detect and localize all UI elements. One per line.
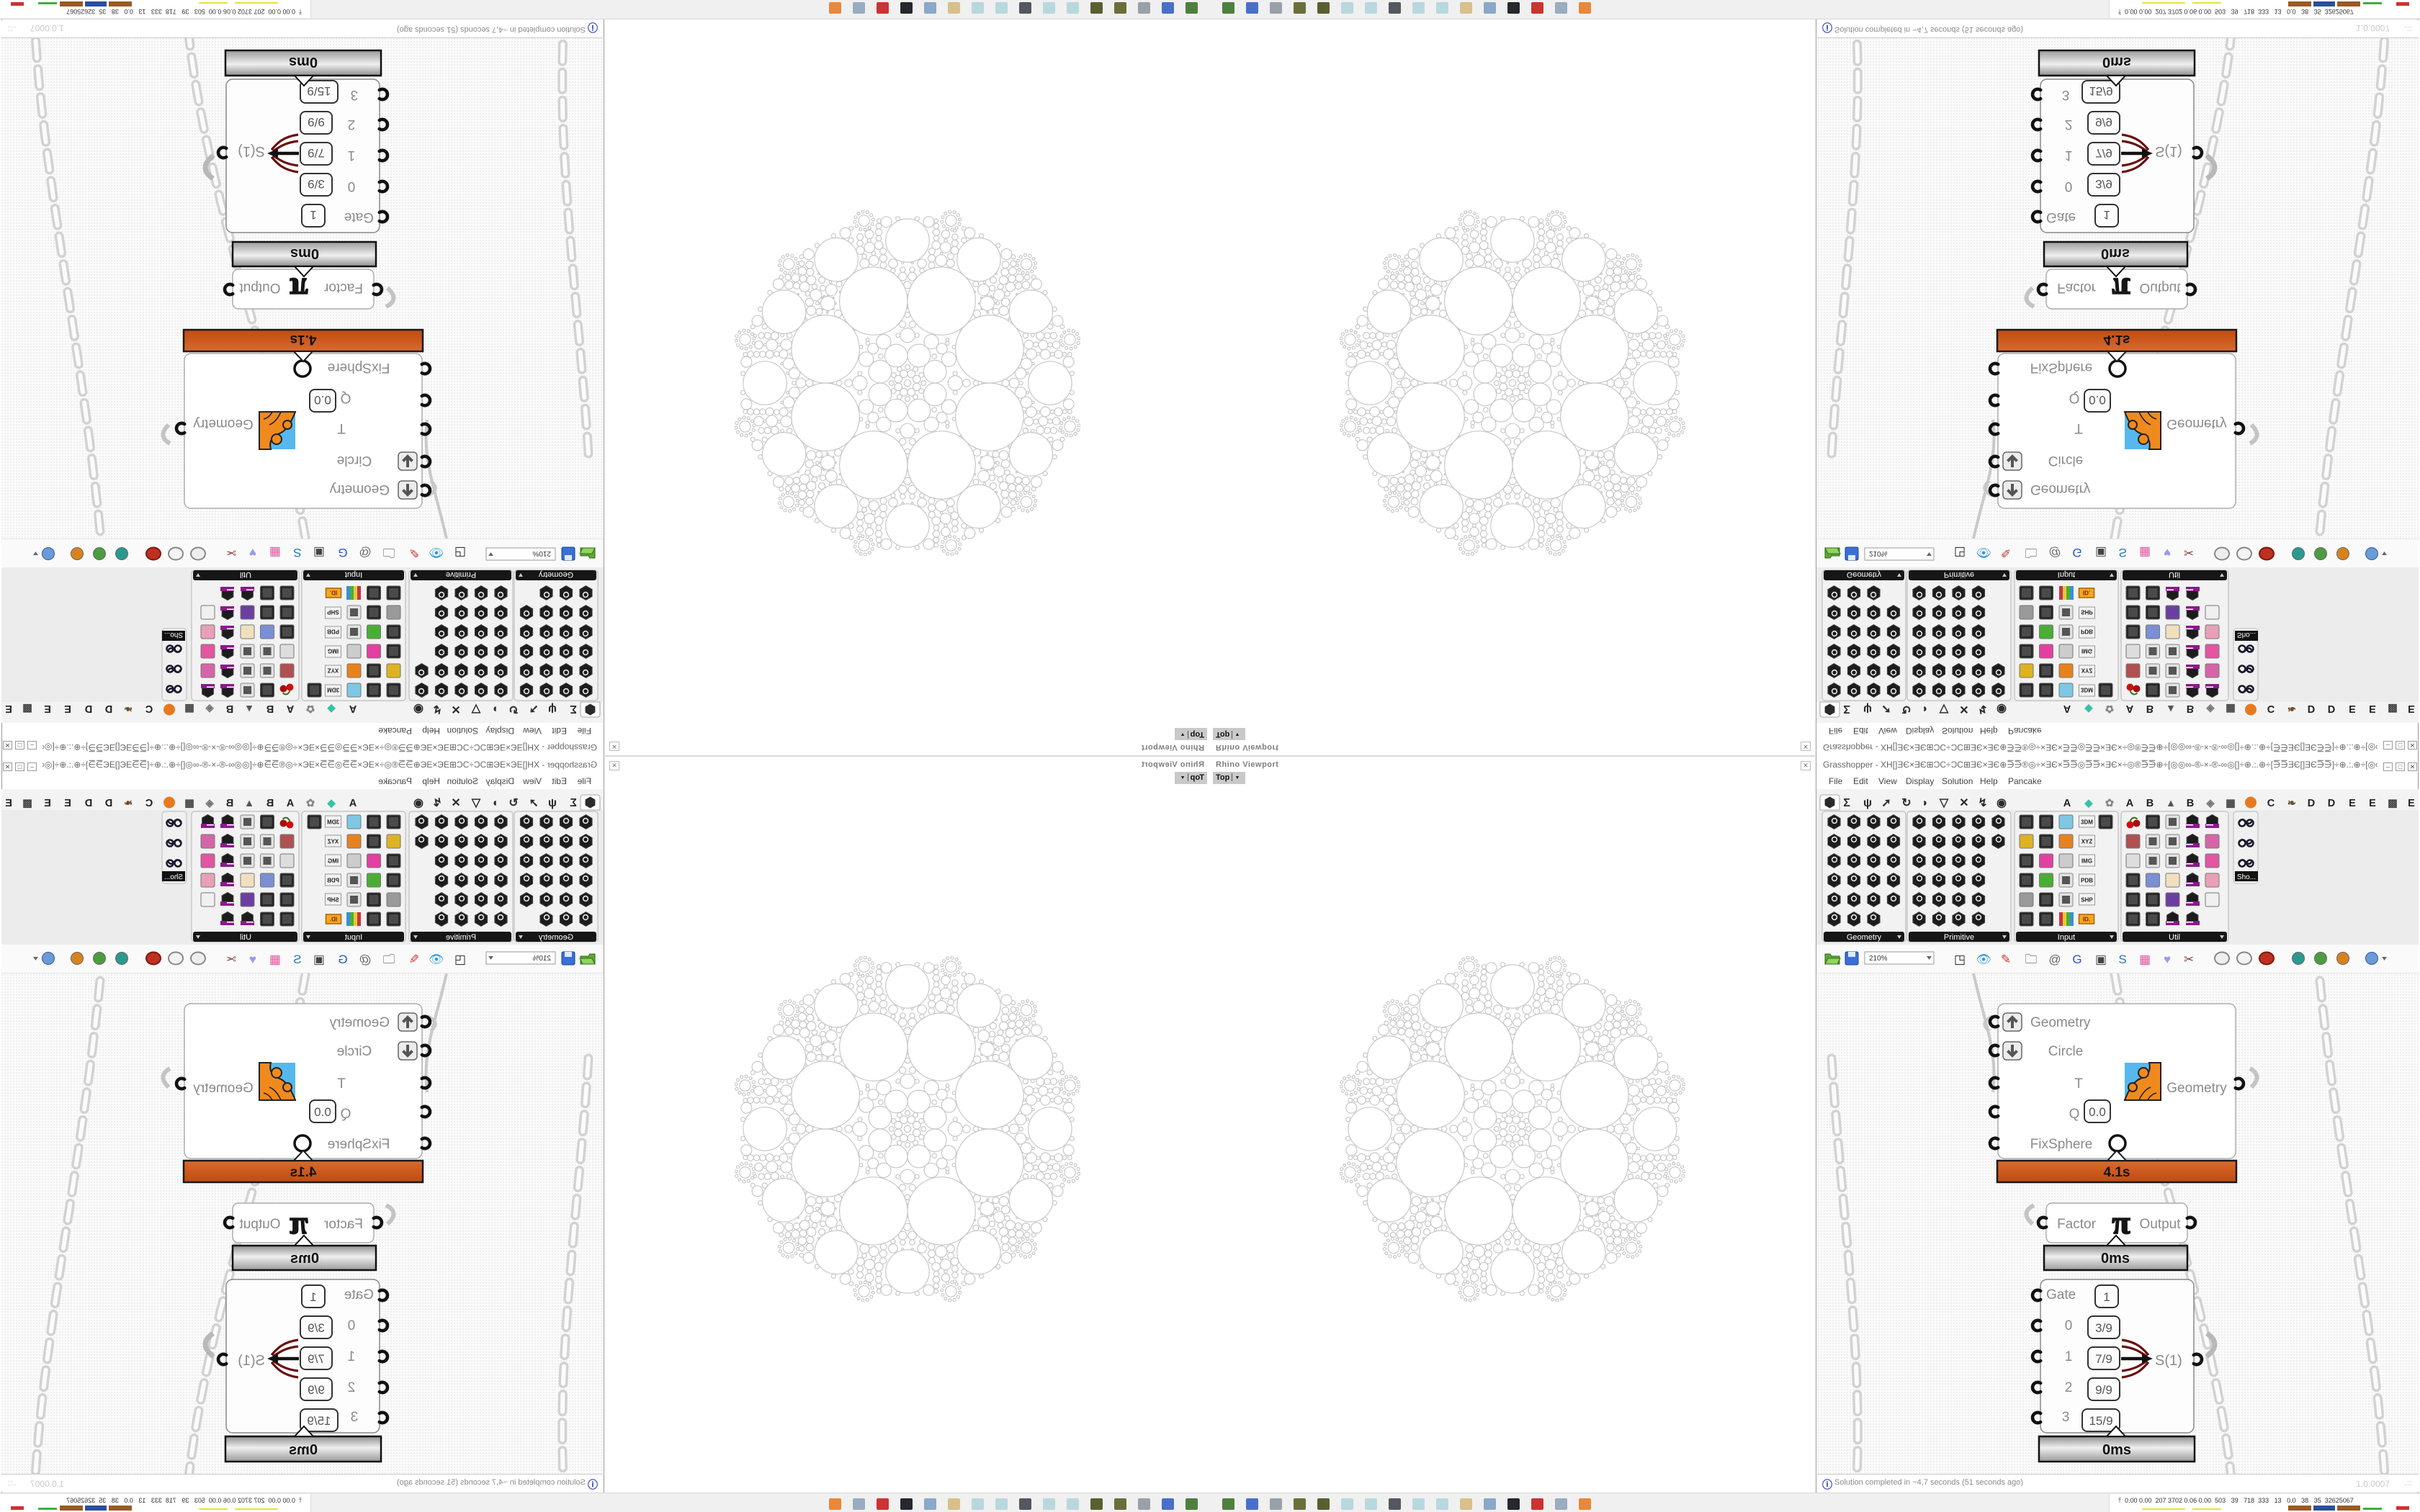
svg-text:✕: ✕ [1959,703,1968,715]
svg-text:♥: ♥ [2164,953,2171,966]
svg-text:7/9: 7/9 [308,146,325,160]
svg-text:❧: ❧ [124,798,133,809]
svg-text:3: 3 [2062,87,2070,102]
svg-text:◈: ◈ [205,703,215,714]
svg-text:D: D [85,703,92,714]
svg-text:SHP: SHP [327,897,339,904]
svg-text:π: π [290,1204,308,1241]
svg-text:D: D [2308,798,2315,809]
svg-text:Q: Q [341,1107,351,1122]
svg-text:ψ: ψ [548,703,557,715]
svg-text:1: 1 [2103,1290,2110,1304]
svg-text:0ms: 0ms [2101,1251,2130,1266]
svg-text:3: 3 [351,1410,359,1425]
svg-text:3DM: 3DM [2081,819,2093,826]
svg-text:◉: ◉ [1996,703,2007,715]
svg-text:B: B [226,798,233,809]
svg-text:👁: 👁 [429,953,444,966]
svg-text:🗀: 🗀 [383,546,395,559]
svg-text:3DM: 3DM [327,687,339,693]
svg-text:3DM: 3DM [327,819,339,826]
svg-text:1: 1 [310,1290,316,1304]
svg-text:S: S [293,953,301,966]
svg-text:FixSphere: FixSphere [328,1137,390,1152]
svg-text:S(1): S(1) [2155,143,2182,159]
svg-text:▦: ▦ [269,953,281,966]
svg-text:B: B [2187,798,2194,809]
svg-text:XYZ: XYZ [328,667,339,674]
svg-text:FixSphere: FixSphere [328,360,390,375]
svg-text:Input: Input [2058,570,2075,579]
svg-text:✎: ✎ [409,546,419,559]
svg-text:S(1): S(1) [238,143,265,159]
svg-text:E: E [2369,703,2376,714]
svg-text:◆: ◆ [2084,798,2093,809]
svg-text:Circle: Circle [2048,453,2084,468]
svg-text:♥: ♥ [2164,546,2171,559]
svg-text:ID.: ID. [2083,590,2090,596]
svg-text:IMG: IMG [2081,648,2092,654]
svg-text:S(1): S(1) [2155,1353,2182,1369]
svg-text:✿: ✿ [2105,798,2115,809]
svg-text:210%: 210% [1869,955,1888,963]
svg-text:↻: ↻ [1901,797,1911,809]
svg-text:1: 1 [310,208,316,222]
svg-text:▩: ▩ [22,703,32,714]
svg-text:ID.: ID. [330,590,337,596]
svg-text:D: D [2328,703,2335,714]
svg-text:Output: Output [239,1217,281,1232]
svg-text:▩: ▩ [2388,798,2398,809]
svg-text:▣: ▣ [2095,546,2107,559]
svg-text:0.0: 0.0 [2089,393,2106,407]
svg-text:♥: ♥ [249,953,256,966]
svg-text:↻: ↻ [508,703,518,715]
svg-text:B: B [226,703,233,714]
svg-text:▲: ▲ [244,798,254,809]
svg-text:▣: ▣ [2095,953,2107,966]
svg-text:✿: ✿ [305,703,315,714]
svg-text:4.1s: 4.1s [290,332,317,347]
svg-text:Circle: Circle [337,453,372,468]
svg-text:D: D [105,703,112,714]
svg-text:Util: Util [240,933,251,942]
svg-text:B: B [266,798,274,809]
svg-text:0ms: 0ms [2102,54,2131,70]
svg-text:▦: ▦ [2139,546,2151,559]
svg-text:➚: ➚ [1881,797,1891,809]
svg-text:E: E [2369,798,2376,809]
svg-text:Output: Output [2139,280,2181,295]
svg-text:↯: ↯ [432,797,442,809]
svg-text:D: D [105,798,112,809]
svg-text:◆: ◆ [2084,703,2093,714]
svg-text:0: 0 [348,179,356,194]
svg-text:ID.: ID. [2083,917,2090,923]
svg-text:S: S [293,546,301,559]
svg-text:◉: ◉ [413,797,423,809]
svg-text:Factor: Factor [2057,280,2097,295]
svg-text:2: 2 [2065,117,2073,132]
svg-text:4.1s: 4.1s [2104,1165,2130,1180]
svg-text:SHP: SHP [2081,609,2093,616]
svg-text:B: B [2146,798,2154,809]
svg-text:C: C [2267,798,2275,809]
svg-text:E: E [2408,703,2415,714]
svg-text:➚: ➚ [1881,703,1891,715]
svg-text:0ms: 0ms [290,1251,319,1266]
svg-text:0ms: 0ms [289,54,318,70]
svg-text:▲: ▲ [2166,798,2176,809]
svg-text:Primitive: Primitive [1944,570,1974,579]
svg-text:✂: ✂ [2184,953,2194,966]
svg-text:SHP: SHP [327,609,339,616]
svg-text:1: 1 [348,148,356,163]
svg-text:1: 1 [348,1349,356,1364]
svg-text:D: D [85,798,92,809]
svg-text:@: @ [2048,546,2061,559]
svg-text:Gate: Gate [2046,1287,2076,1302]
svg-text:🗀: 🗀 [2025,546,2038,559]
svg-text:3: 3 [2062,1410,2070,1425]
svg-text:Geometry: Geometry [2030,1015,2091,1030]
svg-text:Sho...: Sho... [2237,873,2256,881]
svg-text:4.1s: 4.1s [290,1165,317,1180]
svg-text:Σ: Σ [570,703,577,715]
svg-text:▦: ▦ [2226,703,2236,714]
svg-text:Sho...: Sho... [2237,631,2256,639]
svg-text:9/9: 9/9 [308,1383,325,1397]
svg-text:❧: ❧ [2287,798,2296,809]
svg-text:↯: ↯ [1978,703,1987,715]
svg-text:◆: ◆ [327,798,336,809]
svg-text:▩: ▩ [22,798,32,809]
svg-text:Geometry: Geometry [538,570,573,579]
svg-text:1: 1 [2065,1349,2073,1364]
svg-text:▦: ▦ [269,546,281,559]
svg-text:E: E [44,703,51,714]
svg-text:S: S [2118,546,2126,559]
svg-text:XYZ: XYZ [328,839,339,845]
svg-text:ψ: ψ [548,797,557,809]
svg-text:👁: 👁 [1976,546,1991,559]
svg-text:15/9: 15/9 [2089,84,2112,98]
svg-text:Gate: Gate [344,210,374,225]
svg-text:4.1s: 4.1s [2104,332,2130,347]
svg-text:🗀: 🗀 [2025,953,2038,966]
svg-text:G: G [2072,953,2081,966]
svg-text:▲: ▲ [244,703,254,714]
svg-text:◈: ◈ [2205,703,2215,714]
svg-text:S(1): S(1) [238,1353,265,1369]
svg-text:A: A [286,703,294,714]
svg-text:3/9: 3/9 [308,177,325,191]
svg-text:15/9: 15/9 [307,84,331,98]
svg-text:2: 2 [348,117,356,132]
svg-text:3: 3 [351,87,359,102]
svg-text:210%: 210% [532,549,551,557]
svg-text:Geometry: Geometry [329,482,390,497]
svg-text:♥: ♥ [249,546,256,559]
svg-text:👁: 👁 [1976,953,1991,966]
svg-text:@: @ [359,953,371,966]
svg-text:▽: ▽ [471,703,481,715]
svg-text:FixSphere: FixSphere [2030,1137,2093,1152]
svg-text:IMG: IMG [328,648,339,654]
svg-text:▽: ▽ [1939,797,1949,809]
svg-text:XYZ: XYZ [2081,839,2093,845]
svg-text:✂: ✂ [226,953,236,966]
svg-text:3DM: 3DM [2081,687,2093,693]
svg-text:❧: ❧ [124,703,133,714]
svg-text:E: E [2349,703,2356,714]
svg-text:SHP: SHP [2081,897,2093,904]
svg-text:◗: ◗ [491,703,498,715]
svg-text:◈: ◈ [2205,798,2215,809]
svg-text:➚: ➚ [529,703,538,715]
svg-text:0.0: 0.0 [2089,1105,2106,1119]
svg-text:↯: ↯ [432,703,442,715]
svg-text:0.0: 0.0 [314,1105,331,1119]
svg-text:C: C [145,798,153,809]
svg-text:S: S [2118,953,2126,966]
svg-text:Factor: Factor [2057,1217,2097,1232]
svg-text:0ms: 0ms [2102,1442,2131,1458]
svg-text:◳: ◳ [454,546,466,559]
svg-text:◳: ◳ [454,953,466,966]
svg-text:Geometry: Geometry [1847,933,1882,942]
svg-text:Primitive: Primitive [446,570,476,579]
svg-text:0.0: 0.0 [314,393,331,407]
svg-text:Util: Util [2169,933,2180,942]
svg-text:A: A [2063,703,2071,714]
svg-text:Sho...: Sho... [164,873,183,881]
svg-text:1: 1 [2103,208,2110,222]
svg-text:ID.: ID. [330,917,337,923]
svg-text:0ms: 0ms [290,246,319,261]
svg-text:B: B [2187,703,2194,714]
svg-text:210%: 210% [532,955,551,963]
svg-text:▣: ▣ [313,953,325,966]
svg-text:Geometry: Geometry [193,1081,254,1096]
svg-text:T: T [2074,420,2083,436]
svg-text:E: E [5,703,12,714]
svg-text:G: G [2072,546,2081,559]
svg-text:A: A [349,798,357,809]
svg-text:◳: ◳ [1954,953,1966,966]
svg-text:Geometry: Geometry [1847,570,1882,579]
svg-text:PDB: PDB [2081,629,2093,635]
svg-text:◗: ◗ [491,797,498,809]
svg-text:E: E [2408,798,2415,809]
svg-text:Gate: Gate [2046,210,2076,225]
svg-text:✎: ✎ [409,953,419,966]
svg-text:XYZ: XYZ [2081,667,2093,674]
svg-text:▦: ▦ [184,703,194,714]
svg-text:D: D [2308,703,2315,714]
svg-text:ψ: ψ [1863,703,1872,715]
svg-text:◳: ◳ [1954,546,1966,559]
svg-text:▦: ▦ [2139,953,2151,966]
svg-text:2: 2 [348,1380,356,1395]
svg-text:Input: Input [345,570,362,579]
svg-text:◗: ◗ [1922,703,1929,715]
svg-text:Geometry: Geometry [538,933,573,942]
svg-text:0ms: 0ms [2101,246,2130,261]
svg-text:E: E [64,703,71,714]
svg-text:Σ: Σ [1843,703,1850,715]
svg-text:A: A [2126,798,2134,809]
svg-text:Σ: Σ [1843,797,1850,809]
svg-text:7/9: 7/9 [2095,1352,2112,1366]
svg-text:G: G [338,953,347,966]
svg-text:A: A [349,703,357,714]
svg-text:✂: ✂ [2184,546,2194,559]
svg-text:A: A [286,798,294,809]
svg-text:↻: ↻ [508,797,518,809]
svg-text:Primitive: Primitive [1944,933,1974,942]
svg-text:D: D [2328,798,2335,809]
svg-text:Factor: Factor [323,1217,363,1232]
svg-text:◆: ◆ [327,703,336,714]
svg-text:👁: 👁 [429,546,444,559]
svg-text:Circle: Circle [2048,1044,2084,1059]
svg-text:✕: ✕ [1959,797,1968,809]
svg-text:IMG: IMG [328,858,339,865]
svg-text:Geometry: Geometry [2166,1081,2227,1096]
svg-text:Q: Q [2069,1107,2080,1122]
svg-text:A: A [2063,798,2071,809]
svg-text:✕: ✕ [451,703,460,715]
svg-text:E: E [64,798,71,809]
svg-text:▲: ▲ [2166,703,2176,714]
svg-text:Σ: Σ [570,797,577,809]
svg-text:π: π [2112,271,2130,308]
svg-text:B: B [266,703,274,714]
svg-text:210%: 210% [1869,549,1888,557]
svg-text:IMG: IMG [2081,858,2092,865]
svg-text:↯: ↯ [1978,797,1987,809]
svg-text:3/9: 3/9 [2095,1321,2112,1335]
svg-text:Geometry: Geometry [2166,416,2227,431]
svg-text:7/9: 7/9 [2095,146,2112,160]
svg-text:Util: Util [240,570,251,579]
svg-text:9/9: 9/9 [2095,1383,2112,1397]
svg-text:Geometry: Geometry [193,416,254,431]
svg-text:E: E [44,798,51,809]
svg-text:B: B [2146,703,2154,714]
svg-text:Input: Input [345,933,362,942]
svg-text:✎: ✎ [2001,953,2011,966]
svg-text:15/9: 15/9 [2089,1414,2112,1428]
svg-text:E: E [5,798,12,809]
svg-text:T: T [337,1076,346,1092]
svg-text:◗: ◗ [1922,797,1929,809]
svg-text:◉: ◉ [413,703,423,715]
svg-text:Output: Output [2139,1217,2181,1232]
svg-text:7/9: 7/9 [308,1352,325,1366]
svg-text:▣: ▣ [313,546,325,559]
svg-text:Util: Util [2169,570,2180,579]
svg-text:Primitive: Primitive [446,933,476,942]
svg-text:Output: Output [239,280,281,295]
svg-text:▽: ▽ [471,797,481,809]
svg-text:FixSphere: FixSphere [2030,360,2093,375]
svg-text:PDB: PDB [327,629,339,635]
svg-text:ψ: ψ [1863,797,1872,809]
svg-text:▦: ▦ [184,798,194,809]
svg-text:1: 1 [2065,148,2073,163]
svg-text:PDB: PDB [2081,878,2093,884]
svg-text:9/9: 9/9 [308,115,325,129]
svg-text:PDB: PDB [327,878,339,884]
svg-text:0ms: 0ms [289,1442,318,1458]
svg-text:Factor: Factor [323,280,363,295]
svg-text:🗀: 🗀 [383,953,395,966]
svg-text:↻: ↻ [1901,703,1911,715]
svg-text:3/9: 3/9 [308,1321,325,1335]
svg-text:Geometry: Geometry [329,1015,390,1030]
svg-text:0: 0 [2065,1318,2073,1333]
svg-text:❧: ❧ [2287,703,2296,714]
svg-text:◉: ◉ [1996,797,2007,809]
svg-text:0: 0 [2065,179,2073,194]
svg-text:Input: Input [2058,933,2075,942]
svg-text:15/9: 15/9 [307,1414,331,1428]
svg-text:◈: ◈ [205,798,215,809]
svg-text:0: 0 [348,1318,356,1333]
svg-text:3/9: 3/9 [2095,177,2112,191]
svg-text:➚: ➚ [529,797,538,809]
svg-text:T: T [2074,1076,2083,1092]
svg-text:Q: Q [341,390,351,405]
svg-text:Gate: Gate [344,1287,374,1302]
svg-text:G: G [338,546,347,559]
svg-text:✿: ✿ [305,798,315,809]
svg-text:▽: ▽ [1939,703,1949,715]
svg-text:2: 2 [2065,1380,2073,1395]
svg-text:✿: ✿ [2105,703,2115,714]
svg-text:▦: ▦ [2226,798,2236,809]
svg-text:π: π [2112,1204,2130,1241]
svg-text:T: T [337,420,346,436]
svg-text:A: A [2126,703,2134,714]
svg-text:Sho...: Sho... [164,631,183,639]
svg-text:E: E [2349,798,2356,809]
svg-text:▩: ▩ [2388,703,2398,714]
svg-text:Circle: Circle [337,1044,372,1059]
svg-text:C: C [2267,703,2275,714]
svg-text:π: π [290,271,308,308]
svg-text:Q: Q [2069,390,2080,405]
svg-text:9/9: 9/9 [2095,115,2112,129]
svg-text:@: @ [359,546,371,559]
svg-text:✂: ✂ [226,546,236,559]
svg-text:✕: ✕ [451,797,460,809]
svg-text:C: C [145,703,153,714]
svg-text:✎: ✎ [2001,546,2011,559]
svg-text:@: @ [2048,953,2061,966]
svg-text:Geometry: Geometry [2030,482,2091,497]
